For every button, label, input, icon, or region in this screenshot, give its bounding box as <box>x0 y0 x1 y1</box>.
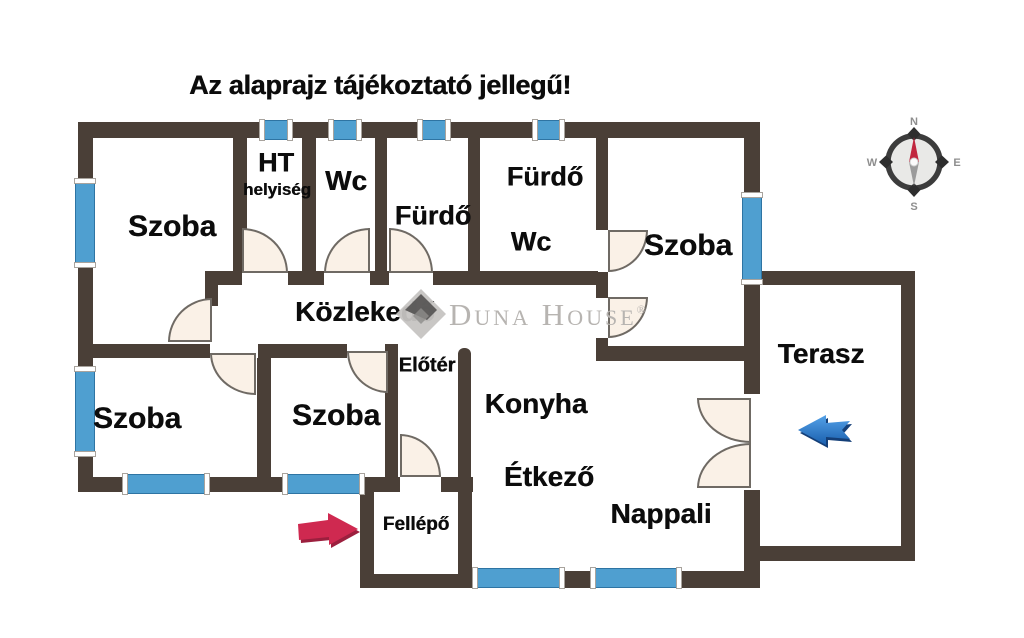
wall <box>596 346 760 361</box>
watermark-diamond-logo <box>393 286 449 342</box>
wall <box>258 344 347 358</box>
room-label-ht: HT <box>258 148 294 179</box>
window-jamb <box>287 119 293 141</box>
window-jamb <box>74 366 96 372</box>
window <box>537 120 560 140</box>
room-label-furdo: Fürdő <box>395 201 471 232</box>
door-arc <box>697 443 751 488</box>
room-label-fellepo: Fellépő <box>383 514 450 536</box>
window-jamb <box>74 451 96 457</box>
disclaimer-title: Az alaprajz tájékoztató jellegű! <box>189 70 571 101</box>
wall <box>744 280 760 394</box>
wall <box>744 490 760 588</box>
room-label-szoba-bottom-left: Szoba <box>93 402 181 436</box>
door-arc <box>242 228 288 273</box>
window-jamb <box>328 119 334 141</box>
door-arc <box>400 434 441 477</box>
room-label-konyha: Konyha <box>485 388 588 420</box>
window <box>287 474 360 494</box>
window-jamb <box>122 473 128 495</box>
door-arc <box>324 228 370 273</box>
door-arc <box>168 298 212 342</box>
window-jamb <box>74 178 96 184</box>
room-label-etkezo: Étkező <box>504 461 594 493</box>
door-arc <box>347 351 388 393</box>
compass-label-s: S <box>910 201 917 213</box>
compass-rose: N E S W <box>862 106 966 218</box>
window-jamb <box>445 119 451 141</box>
window <box>742 197 762 280</box>
window <box>264 120 288 140</box>
room-label-wc: Wc <box>325 165 367 197</box>
window <box>595 568 677 588</box>
window <box>333 120 357 140</box>
wall <box>302 138 316 273</box>
wall <box>433 271 598 285</box>
window-jamb <box>741 192 763 198</box>
window-jamb <box>532 119 538 141</box>
window <box>127 474 205 494</box>
window <box>422 120 446 140</box>
window-jamb <box>204 473 210 495</box>
entrance-arrow-icon <box>296 512 362 552</box>
window-jamb <box>417 119 423 141</box>
room-label-furdo-wc-line1: Fürdő <box>507 162 583 193</box>
window-jamb <box>590 567 596 589</box>
window-jamb <box>359 473 365 495</box>
room-label-furdo-wc-line2: Wc <box>511 227 552 258</box>
wall <box>370 271 389 285</box>
window <box>75 183 95 263</box>
room-label-ht-helyiseg: helyiség <box>243 180 311 200</box>
wall <box>901 271 915 561</box>
window-jamb <box>282 473 288 495</box>
window-jamb <box>74 262 96 268</box>
wall <box>458 348 471 478</box>
door-arc <box>389 228 433 273</box>
compass-label-w: W <box>867 157 878 169</box>
window-jamb <box>676 567 682 589</box>
room-label-szoba-top-left: Szoba <box>128 210 216 244</box>
room-label-nappali: Nappali <box>610 498 711 530</box>
window-jamb <box>356 119 362 141</box>
window-jamb <box>259 119 265 141</box>
door-arc <box>608 230 648 272</box>
wall <box>596 138 608 230</box>
window-jamb <box>741 279 763 285</box>
watermark-brand: Duna House® <box>449 297 649 333</box>
compass-label-e: E <box>953 157 960 169</box>
room-label-szoba-bottom-mid: Szoba <box>292 399 380 433</box>
window <box>477 568 560 588</box>
wall <box>257 358 271 477</box>
wall <box>288 271 324 285</box>
wall <box>744 122 760 198</box>
wall <box>360 574 472 588</box>
window-jamb <box>559 567 565 589</box>
wall <box>760 271 903 285</box>
floor-plan: Az alaprajz tájékoztató jellegű! SzobaHT… <box>0 0 1024 638</box>
room-label-terasz: Terasz <box>778 338 865 370</box>
wall <box>78 344 210 358</box>
wall <box>760 546 915 561</box>
door-arc <box>697 398 751 443</box>
window-jamb <box>559 119 565 141</box>
room-label-szoba-top-right: Szoba <box>644 229 732 263</box>
wall <box>375 138 387 273</box>
window-jamb <box>472 567 478 589</box>
registered-mark: ® <box>637 303 649 317</box>
door-arc <box>210 353 256 395</box>
compass-label-n: N <box>910 116 918 128</box>
terrace-arrow-icon <box>796 413 858 451</box>
room-label-eloter: Előtér <box>399 355 456 378</box>
